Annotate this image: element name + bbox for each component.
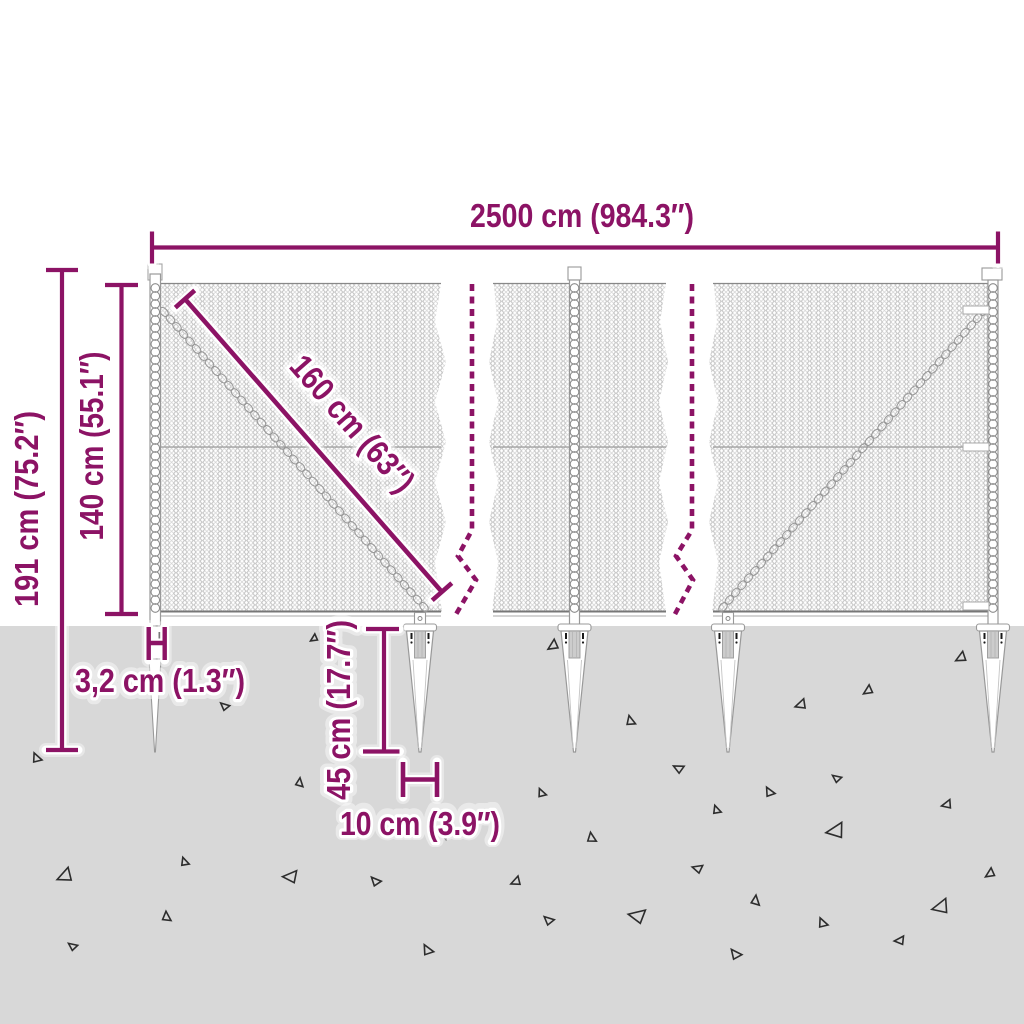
svg-text:191 cm (75.2″): 191 cm (75.2″) bbox=[8, 411, 45, 607]
svg-text:2500 cm (984.3″): 2500 cm (984.3″) bbox=[470, 197, 694, 234]
svg-text:140 cm (55.1″): 140 cm (55.1″) bbox=[73, 352, 110, 541]
svg-text:45 cm (17.7″): 45 cm (17.7″) bbox=[320, 620, 357, 800]
svg-text:10 cm (3.9″): 10 cm (3.9″) bbox=[340, 805, 500, 842]
svg-text:3,2 cm (1.3″): 3,2 cm (1.3″) bbox=[75, 662, 245, 699]
